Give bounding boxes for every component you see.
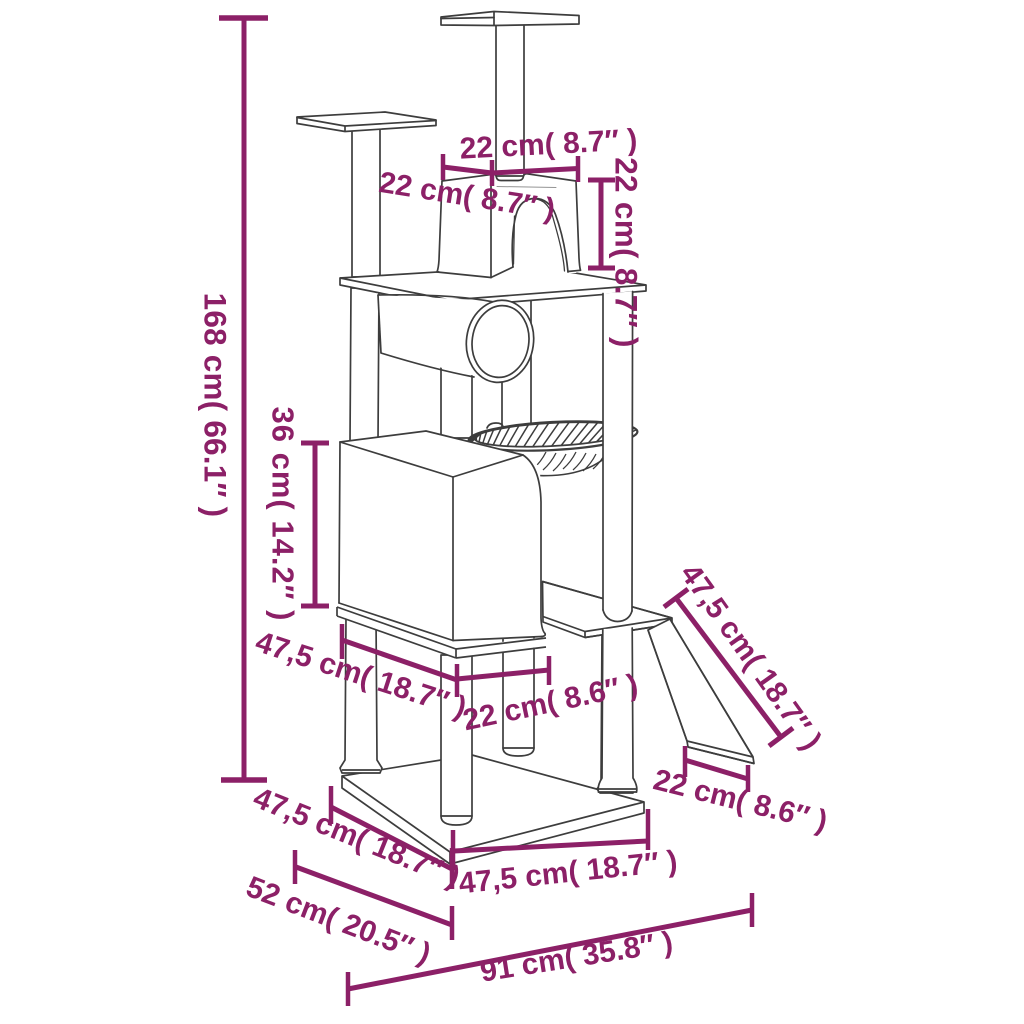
svg-text:36 cm( 14.2″ ): 36 cm( 14.2″ ): [266, 407, 301, 622]
svg-text:22 cm( 8.7″ ): 22 cm( 8.7″ ): [609, 157, 645, 348]
svg-text:168 cm( 66.1″ ): 168 cm( 66.1″ ): [198, 293, 234, 518]
